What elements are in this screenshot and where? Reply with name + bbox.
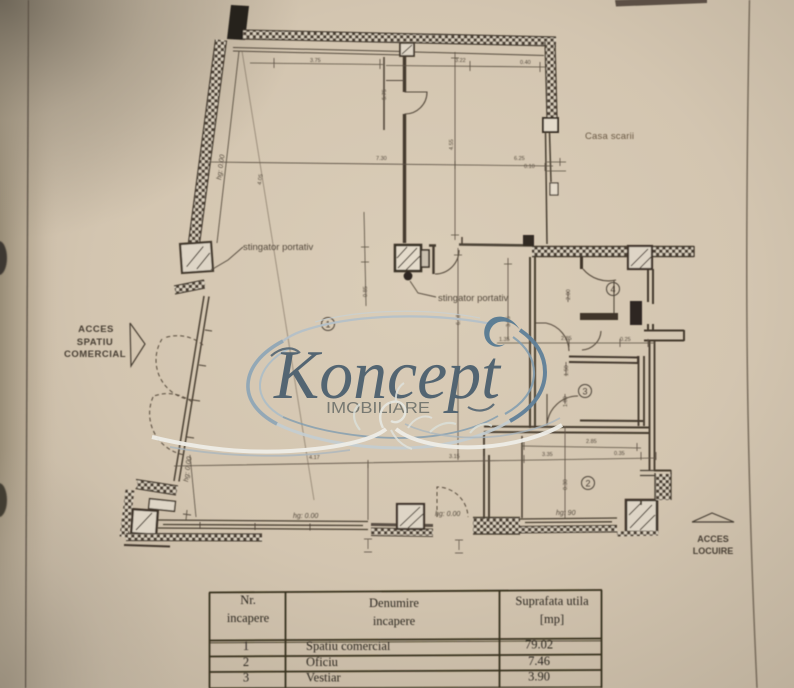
svg-text:Suprafata utila: Suprafata utila <box>515 594 589 608</box>
svg-text:7.46: 7.46 <box>528 654 550 668</box>
svg-text:0.35: 0.35 <box>614 451 625 457</box>
svg-text:ACCES: ACCES <box>697 534 729 544</box>
svg-text:Spatiu comercial: Spatiu comercial <box>306 639 391 653</box>
svg-text:IMOBILIARE: IMOBILIARE <box>326 400 430 417</box>
svg-text:4.17: 4.17 <box>309 455 320 461</box>
svg-text:5.75: 5.75 <box>382 89 388 100</box>
svg-text:2.85: 2.85 <box>561 336 572 342</box>
svg-text:incapere: incapere <box>373 614 416 628</box>
svg-text:stingator portativ: stingator portativ <box>243 242 313 253</box>
svg-text:3.75: 3.75 <box>310 58 321 64</box>
svg-text:1.35: 1.35 <box>499 337 510 343</box>
svg-text:COMERCIAL: COMERCIAL <box>64 349 126 360</box>
svg-text:4: 4 <box>610 285 615 295</box>
svg-text:SPATIU: SPATIU <box>77 337 113 348</box>
svg-text:1: 1 <box>243 639 249 653</box>
svg-text:3.15: 3.15 <box>449 454 460 460</box>
svg-text:LOCUIRE: LOCUIRE <box>693 546 734 556</box>
svg-text:0.85: 0.85 <box>363 286 369 297</box>
svg-text:2.85: 2.85 <box>586 439 597 445</box>
svg-text:[mp]: [mp] <box>540 612 564 626</box>
svg-text:3: 3 <box>582 387 587 397</box>
svg-text:3: 3 <box>243 671 249 685</box>
svg-text:4.55: 4.55 <box>449 139 455 150</box>
svg-text:stingator portativ: stingator portativ <box>438 293 508 304</box>
svg-text:Casa scarii: Casa scarii <box>585 131 634 142</box>
svg-text:0.10: 0.10 <box>524 164 535 170</box>
svg-text:0.40: 0.40 <box>520 60 531 66</box>
svg-text:hg: 0.00: hg: 0.00 <box>293 513 318 520</box>
svg-text:2: 2 <box>585 479 590 489</box>
svg-text:3.22: 3.22 <box>455 58 466 64</box>
svg-text:7.30: 7.30 <box>376 156 387 162</box>
svg-text:3.35: 3.35 <box>542 452 553 458</box>
svg-text:0.25: 0.25 <box>620 337 631 343</box>
svg-text:3.90: 3.90 <box>528 670 550 684</box>
svg-text:0.30: 0.30 <box>563 479 569 490</box>
svg-text:ACCES: ACCES <box>78 324 114 335</box>
svg-text:hg: 0.00: hg: 0.00 <box>435 511 460 518</box>
svg-text:1.50: 1.50 <box>564 365 570 376</box>
svg-text:6.25: 6.25 <box>514 156 525 162</box>
svg-text:2: 2 <box>243 655 249 669</box>
svg-text:Nr.: Nr. <box>240 593 256 607</box>
svg-text:hg: 90: hg: 90 <box>556 510 576 517</box>
svg-text:incapere: incapere <box>227 611 270 625</box>
svg-text:79.02: 79.02 <box>525 638 553 652</box>
svg-text:Vestiar: Vestiar <box>306 671 342 685</box>
svg-text:Denumire: Denumire <box>369 596 419 610</box>
svg-text:1.80: 1.80 <box>563 396 569 407</box>
svg-text:2.00: 2.00 <box>566 289 572 300</box>
svg-text:Oficiu: Oficiu <box>306 655 339 669</box>
